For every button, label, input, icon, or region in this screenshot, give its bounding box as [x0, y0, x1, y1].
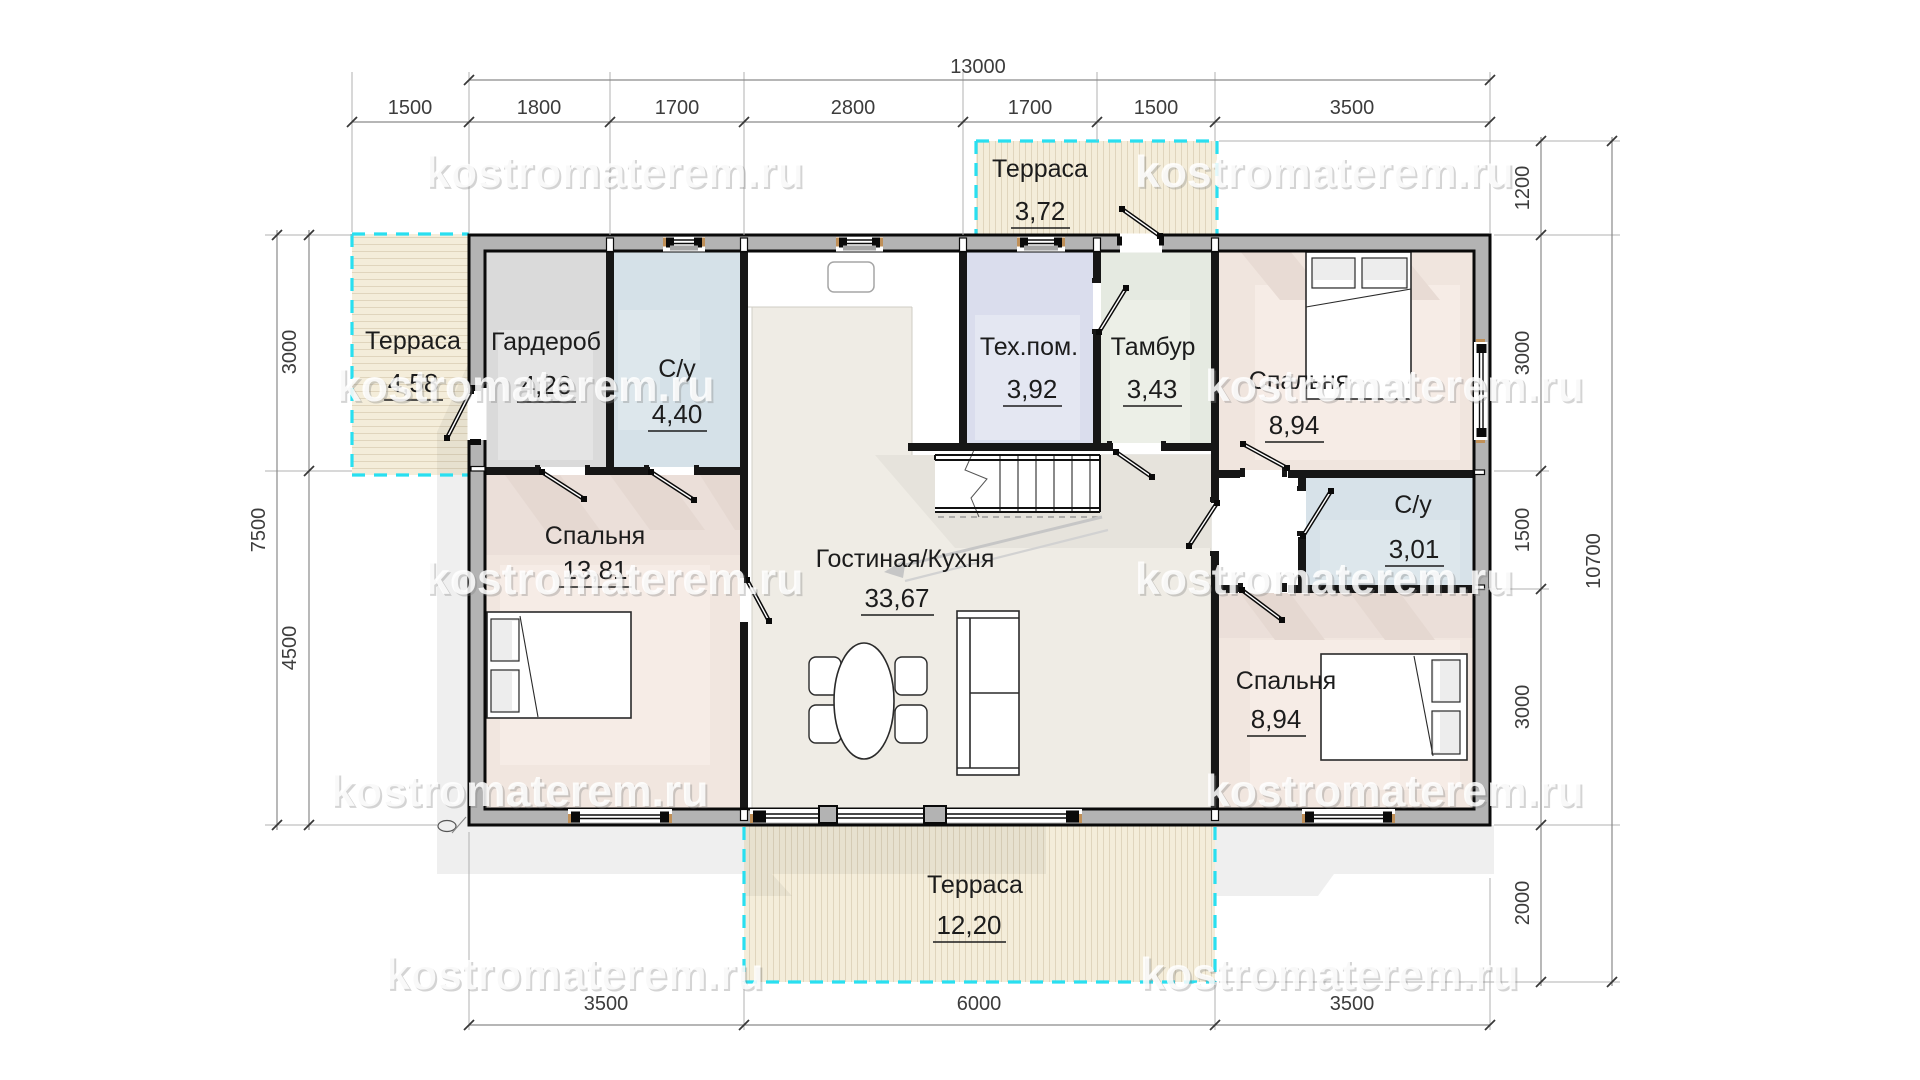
svg-text:3500: 3500 [1330, 97, 1375, 119]
svg-text:kostromaterem.ru: kostromaterem.ru [1205, 362, 1583, 411]
svg-text:6000: 6000 [957, 993, 1002, 1015]
svg-text:1700: 1700 [1008, 97, 1053, 119]
svg-text:kostromaterem.ru: kostromaterem.ru [330, 767, 708, 816]
svg-text:8,94: 8,94 [1251, 704, 1302, 734]
svg-text:Терраса: Терраса [927, 871, 1023, 899]
svg-text:Терраса: Терраса [365, 327, 461, 355]
svg-text:kostromaterem.ru: kostromaterem.ru [1140, 950, 1518, 999]
svg-text:Гардероб: Гардероб [491, 328, 601, 356]
svg-text:3,43: 3,43 [1127, 374, 1178, 404]
svg-text:kostromaterem.ru: kostromaterem.ru [1135, 555, 1513, 604]
svg-text:8,94: 8,94 [1269, 410, 1320, 440]
svg-text:33,67: 33,67 [864, 583, 929, 613]
svg-text:kostromaterem.ru: kostromaterem.ru [1205, 767, 1583, 816]
svg-text:13000: 13000 [950, 56, 1006, 78]
svg-text:3,92: 3,92 [1007, 374, 1058, 404]
svg-text:1500: 1500 [1134, 97, 1179, 119]
svg-text:Спальня: Спальня [1236, 667, 1336, 695]
svg-text:1700: 1700 [655, 97, 700, 119]
svg-text:1500: 1500 [388, 97, 433, 119]
svg-text:2000: 2000 [1512, 881, 1534, 926]
svg-text:kostromaterem.ru: kostromaterem.ru [425, 555, 803, 604]
svg-text:3000: 3000 [279, 330, 301, 375]
svg-text:Гостиная/Кухня: Гостиная/Кухня [816, 545, 995, 573]
svg-text:3,72: 3,72 [1015, 196, 1066, 226]
svg-text:Тамбур: Тамбур [1111, 333, 1196, 361]
svg-text:1800: 1800 [517, 97, 562, 119]
svg-text:12,20: 12,20 [936, 910, 1001, 940]
svg-text:Терраса: Терраса [992, 155, 1088, 183]
svg-text:kostromaterem.ru: kostromaterem.ru [1135, 148, 1513, 197]
svg-text:7500: 7500 [248, 508, 270, 553]
svg-text:kostromaterem.ru: kostromaterem.ru [336, 362, 714, 411]
svg-text:3000: 3000 [1512, 685, 1534, 730]
svg-text:1500: 1500 [1512, 508, 1534, 553]
svg-text:10700: 10700 [1583, 533, 1605, 589]
svg-text:С/у: С/у [1394, 491, 1432, 519]
svg-text:Спальня: Спальня [545, 522, 645, 550]
svg-text:kostromaterem.ru: kostromaterem.ru [425, 148, 803, 197]
svg-text:kostromaterem.ru: kostromaterem.ru [385, 950, 763, 999]
svg-text:2800: 2800 [831, 97, 876, 119]
svg-text:Тех.пом.: Тех.пом. [980, 333, 1078, 361]
svg-text:4500: 4500 [279, 626, 301, 671]
